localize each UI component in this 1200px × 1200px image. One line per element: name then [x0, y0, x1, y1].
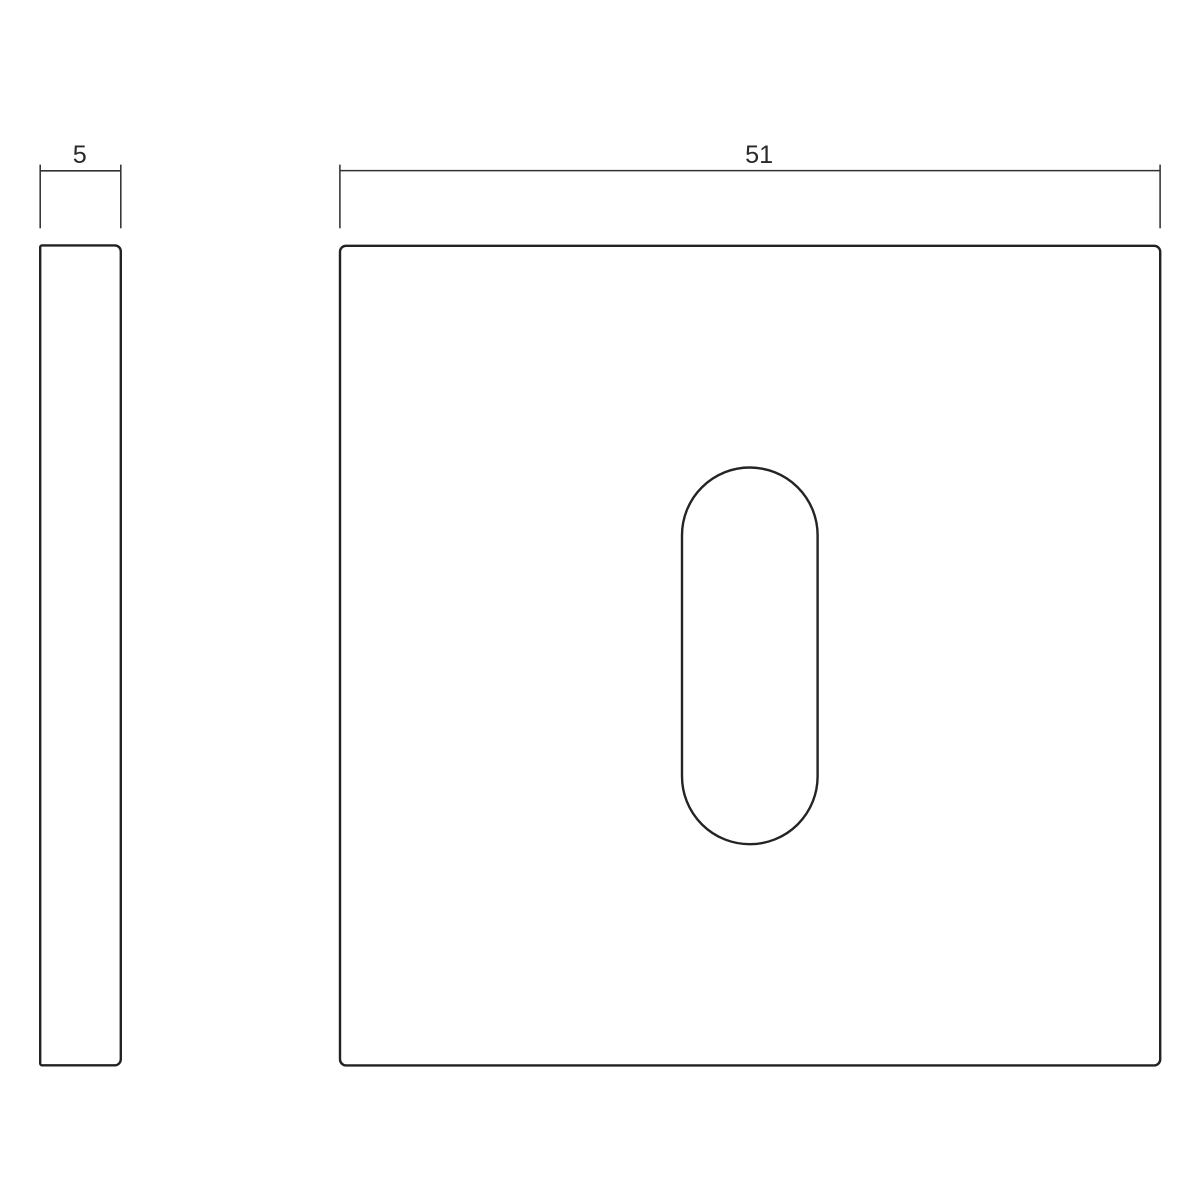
svg-text:51: 51: [745, 141, 773, 169]
svg-text:5: 5: [73, 141, 87, 169]
